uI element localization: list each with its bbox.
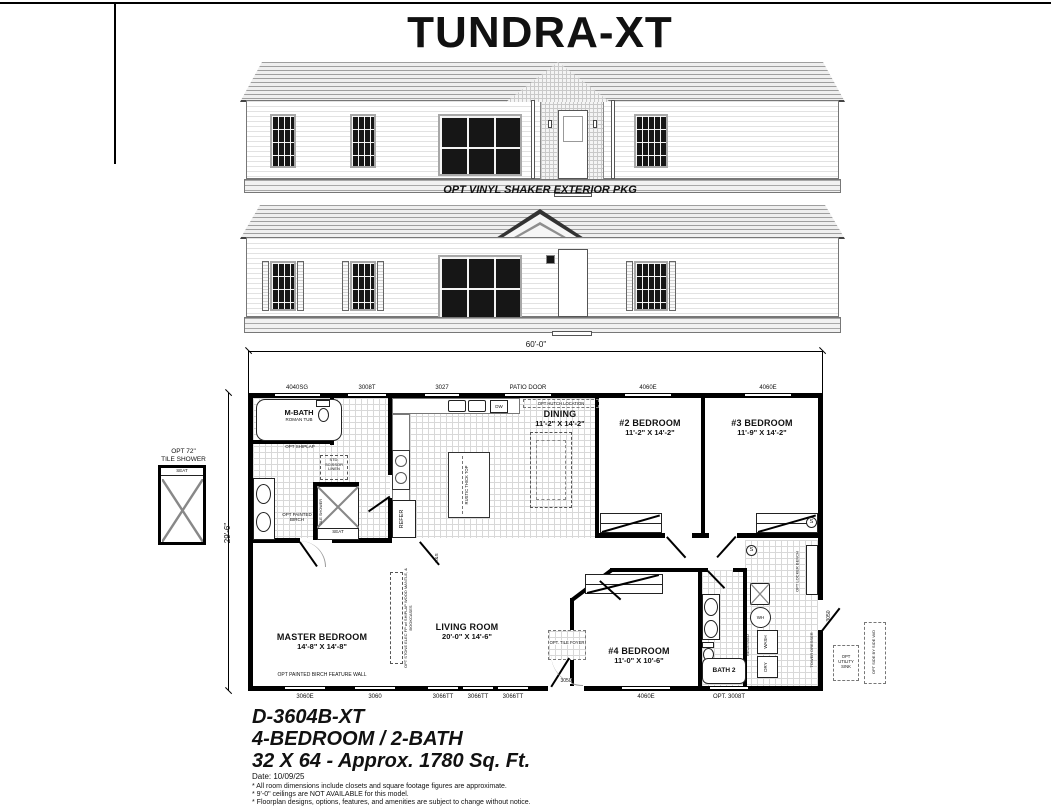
burner-icon [395, 455, 407, 467]
island-label: RUSTIC THICK TOP [464, 457, 474, 513]
hutch-option: OPT HUTCH LOCATION [523, 399, 599, 408]
window-label: 4060E [759, 385, 776, 391]
wall-segment [595, 393, 599, 538]
wall-segment [701, 393, 705, 538]
front-door-opening [548, 686, 584, 691]
front-elevation-shaker [240, 62, 845, 197]
dw-label: DW [491, 404, 507, 409]
tile-foyer-label: OPT. TILE FOYER [549, 640, 585, 645]
burner-icon [395, 472, 407, 484]
dryer-label: DRY [763, 647, 771, 687]
dim-top-label: 60'-0" [526, 340, 546, 349]
window [350, 114, 376, 168]
kitchen-sink-icon [448, 400, 466, 412]
window [634, 114, 668, 168]
siding-wall [246, 237, 839, 317]
utility-sink-label: OPT UTILITY SINK [834, 654, 858, 669]
window [270, 114, 296, 168]
shiplap-label: OPT SHIPLAP [285, 444, 314, 449]
kitchen-sink-icon [468, 400, 486, 412]
shutter [342, 261, 349, 311]
front-elevation-standard [240, 205, 845, 333]
shower-x-icon [162, 479, 203, 542]
porch-post [531, 100, 535, 179]
window-label: 3027 [435, 385, 448, 391]
painted-birch-label: OPT PAINTED BIRCH [278, 512, 316, 522]
note-line: * All room dimensions include closets an… [252, 783, 507, 790]
porch-light-icon [593, 120, 597, 128]
island-line [462, 456, 463, 514]
rear-door-opening [818, 600, 823, 630]
drawing-sheet: TUNDRA-XT OPT VINYL SHAKER EXTERIOR PKG [0, 0, 1051, 810]
triple-window [438, 114, 522, 176]
window-3008t [348, 393, 386, 398]
window-label: 3066TT [468, 694, 489, 700]
room-label-bed2: #2 BEDROOM 11'-2" X 14'-2" [619, 418, 681, 437]
hutch-label: OPT HUTCH LOCATION [524, 401, 598, 406]
window-label: 3008T [358, 385, 375, 391]
rear-door-label: 3050 [826, 603, 834, 629]
room-label-living: LIVING ROOM 20'-0" X 14'-6" [436, 622, 499, 641]
window [270, 261, 296, 311]
window-label: 4060E [639, 385, 656, 391]
bed-bath-config: 4-BEDROOM / 2-BATH [252, 728, 463, 751]
window-label: 3066TT [503, 694, 524, 700]
window-label: 4060E [637, 694, 654, 700]
window-4060e [622, 686, 670, 691]
room-label-bed4: #4 BEDROOM 11'-0" X 10'-6" [608, 646, 670, 665]
size-sqft: 32 X 64 - Approx. 1780 Sq. Ft. [252, 750, 530, 773]
door-leaf [666, 536, 686, 558]
window-3060e [285, 686, 325, 691]
window-label: 3060 [368, 694, 381, 700]
window-label: 3060E [296, 694, 313, 700]
fireplace-label: OPT STONE ELEC FP w/ SHIPLAP WOOD MANTLE… [403, 563, 413, 673]
dim-extension [248, 351, 249, 393]
dim-extension [822, 351, 823, 393]
window [634, 261, 668, 311]
sink-icon [704, 620, 718, 638]
sheet-border-left [114, 2, 116, 164]
porch-light-icon [548, 120, 552, 128]
side-by-side-label: OPT SIDE BY SIDE W/D [871, 622, 879, 682]
linen-cabinet: STD. SCISSOR LINEN [320, 455, 348, 480]
bath2-label: BATH 2 [703, 667, 745, 674]
tower-dresser-label: TOWER DRESSER [809, 622, 817, 678]
page-title: TUNDRA-XT [290, 8, 790, 58]
smoke-detector-icon: S [746, 545, 757, 556]
linen-label: STD. SCISSOR LINEN [321, 458, 347, 472]
note-line: * Floorplan designs, options, features, … [252, 799, 531, 806]
wall-segment [737, 533, 823, 538]
locker-bench-icon [806, 545, 818, 595]
skirting [244, 317, 841, 333]
opt-shower-seat: SEAT [161, 468, 203, 476]
window-3060 [355, 686, 395, 691]
porch-post [611, 100, 615, 179]
rod-shelf-label: R&S [434, 545, 442, 571]
window-4060e [625, 393, 671, 398]
tile-shower-label: TILE SHOWER [319, 487, 327, 537]
note-line: * 9'-0" ceilings are NOT AVAILABLE for t… [252, 791, 409, 798]
opt-shower-title: OPT 72" TILE SHOWER [146, 448, 221, 464]
shutter [377, 261, 384, 311]
window-3066tt [498, 686, 528, 691]
window-label: OPT. 3008T [713, 694, 745, 700]
date-label: Date: 10/09/25 [252, 772, 304, 781]
shutter [669, 261, 676, 311]
utility-sink-option: OPT UTILITY SINK [833, 645, 859, 681]
cabinet-x-icon [750, 583, 770, 605]
wall-segment [595, 533, 665, 538]
dining-table-inner [536, 440, 566, 500]
toilet-icon [318, 408, 329, 422]
window-label: 4040SG [286, 385, 308, 391]
door-leaf [717, 536, 737, 558]
sink-icon [256, 512, 271, 532]
front-door-label: 3050 [560, 678, 571, 684]
sink-icon [704, 598, 718, 616]
feature-wall-label: OPT PAINTED BIRCH FEATURE WALL [278, 672, 367, 678]
room-label-dining: DINING 11'-2" X 14'-2" [535, 409, 584, 428]
shutter [262, 261, 269, 311]
fireplace-option [390, 572, 403, 664]
door-panel [563, 116, 583, 142]
bathtub-icon: BATH 2 [702, 658, 746, 684]
entry-door [558, 249, 588, 317]
wall-segment [692, 533, 709, 538]
refer-label: REFER [399, 495, 409, 543]
window-opt-3008t [710, 686, 748, 691]
dim-left-label: 29'-6" [223, 501, 233, 565]
wall-exterior-right [818, 393, 823, 691]
sink-icon [256, 484, 271, 504]
window-4060e [745, 393, 791, 398]
locker-bench-label: OPT LOCKER BENCH [795, 544, 804, 600]
dishwasher-icon: DW [490, 400, 508, 413]
window-3066tt [463, 686, 493, 691]
wall-segment [610, 568, 708, 572]
elevation-caption: OPT VINYL SHAKER EXTERIOR PKG [340, 184, 740, 196]
window-3066tt [428, 686, 458, 691]
room-label-bed3: #3 BEDROOM 11'-9" X 14'-2" [731, 418, 793, 437]
door-arc [300, 541, 326, 567]
shutter [297, 261, 304, 311]
model-number: D-3604B-XT [252, 706, 364, 729]
window-4040sg [275, 393, 320, 398]
recessed-label: RECESSED [745, 624, 753, 666]
window [350, 261, 376, 311]
toilet-tank-icon [316, 400, 330, 407]
entry-steps [552, 331, 592, 336]
window-label: 3066TT [433, 694, 454, 700]
doorbell-window [546, 255, 555, 264]
dimension-line-top [248, 351, 823, 352]
door-label: PATIO DOOR [510, 385, 547, 391]
shutter [626, 261, 633, 311]
triple-window [438, 255, 522, 319]
smoke-detector-icon: S [806, 517, 817, 528]
sheet-border-top [0, 2, 1051, 4]
room-label-master: MASTER BEDROOM 14'-8" X 14'-8" [277, 632, 367, 651]
